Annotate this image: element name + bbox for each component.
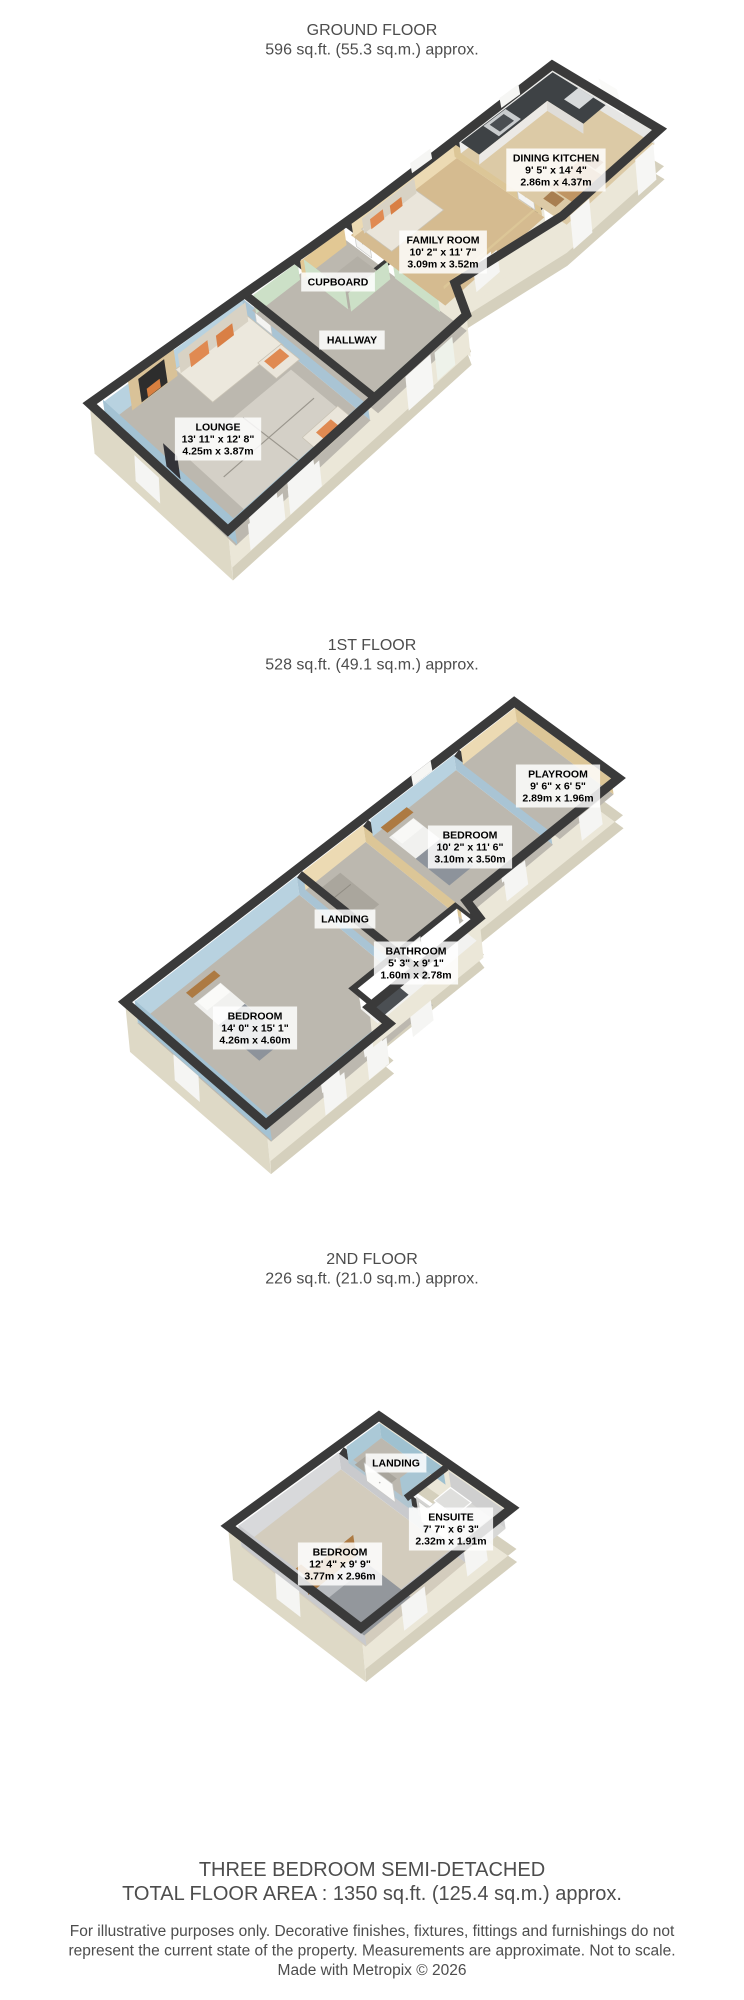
svg-text:5' 3" x 9' 1": 5' 3" x 9' 1": [388, 958, 444, 970]
svg-text:PLAYROOM: PLAYROOM: [528, 769, 588, 781]
svg-text:1.60m x 2.78m: 1.60m x 2.78m: [380, 970, 451, 982]
svg-text:THREE BEDROOM SEMI-DETACHED: THREE BEDROOM SEMI-DETACHED: [199, 1859, 545, 1881]
svg-text:ENSUITE: ENSUITE: [428, 1512, 474, 1524]
svg-text:represent the current state of: represent the current state of the prope…: [68, 1943, 675, 1960]
svg-text:4.25m x 3.87m: 4.25m x 3.87m: [182, 446, 253, 458]
svg-text:LANDING: LANDING: [372, 1458, 420, 1470]
svg-text:LANDING: LANDING: [321, 914, 369, 926]
svg-text:2.86m x 4.37m: 2.86m x 4.37m: [520, 177, 591, 189]
svg-text:2.89m x 1.96m: 2.89m x 1.96m: [522, 793, 593, 805]
svg-text:528 sq.ft. (49.1 sq.m.) approx: 528 sq.ft. (49.1 sq.m.) approx.: [265, 657, 478, 674]
svg-text:BEDROOM: BEDROOM: [443, 830, 498, 842]
svg-text:For illustrative purposes only: For illustrative purposes only. Decorati…: [70, 1923, 675, 1940]
svg-text:3.10m x 3.50m: 3.10m x 3.50m: [434, 854, 505, 866]
svg-text:TOTAL FLOOR AREA : 1350 sq.ft.: TOTAL FLOOR AREA : 1350 sq.ft. (125.4 sq…: [122, 1883, 622, 1905]
svg-text:10' 2" x 11' 6": 10' 2" x 11' 6": [437, 842, 504, 854]
svg-text:10' 2" x 11' 7": 10' 2" x 11' 7": [410, 247, 477, 259]
svg-text:9' 6" x 6' 5": 9' 6" x 6' 5": [530, 781, 586, 793]
svg-text:BEDROOM: BEDROOM: [228, 1011, 283, 1023]
svg-text:CUPBOARD: CUPBOARD: [308, 277, 369, 289]
svg-text:FAMILY ROOM: FAMILY ROOM: [407, 235, 480, 247]
svg-text:596 sq.ft. (55.3 sq.m.) approx: 596 sq.ft. (55.3 sq.m.) approx.: [265, 42, 478, 59]
svg-text:GROUND FLOOR: GROUND FLOOR: [307, 22, 438, 39]
svg-text:BATHROOM: BATHROOM: [385, 946, 446, 958]
svg-text:3.77m x 2.96m: 3.77m x 2.96m: [304, 1571, 375, 1583]
svg-text:12' 4" x 9' 9": 12' 4" x 9' 9": [309, 1559, 371, 1571]
svg-text:4.26m x 4.60m: 4.26m x 4.60m: [219, 1035, 290, 1047]
svg-text:3.09m x 3.52m: 3.09m x 3.52m: [407, 259, 478, 271]
svg-text:14' 0" x 15' 1": 14' 0" x 15' 1": [221, 1023, 289, 1035]
svg-text:2ND FLOOR: 2ND FLOOR: [326, 1251, 418, 1268]
svg-text:BEDROOM: BEDROOM: [313, 1547, 368, 1559]
svg-text:226 sq.ft. (21.0 sq.m.) approx: 226 sq.ft. (21.0 sq.m.) approx.: [265, 1271, 478, 1288]
svg-text:2.32m x 1.91m: 2.32m x 1.91m: [415, 1536, 486, 1548]
svg-text:DINING KITCHEN: DINING KITCHEN: [513, 153, 599, 165]
svg-text:LOUNGE: LOUNGE: [196, 422, 241, 434]
svg-text:13' 11" x 12' 8": 13' 11" x 12' 8": [182, 434, 255, 446]
svg-text:9' 5" x 14' 4": 9' 5" x 14' 4": [525, 165, 587, 177]
svg-text:Made with Metropix © 2026: Made with Metropix © 2026: [278, 1962, 467, 1979]
svg-text:HALLWAY: HALLWAY: [327, 335, 377, 347]
svg-text:1ST FLOOR: 1ST FLOOR: [328, 637, 417, 654]
svg-text:7' 7" x 6' 3": 7' 7" x 6' 3": [423, 1524, 479, 1536]
